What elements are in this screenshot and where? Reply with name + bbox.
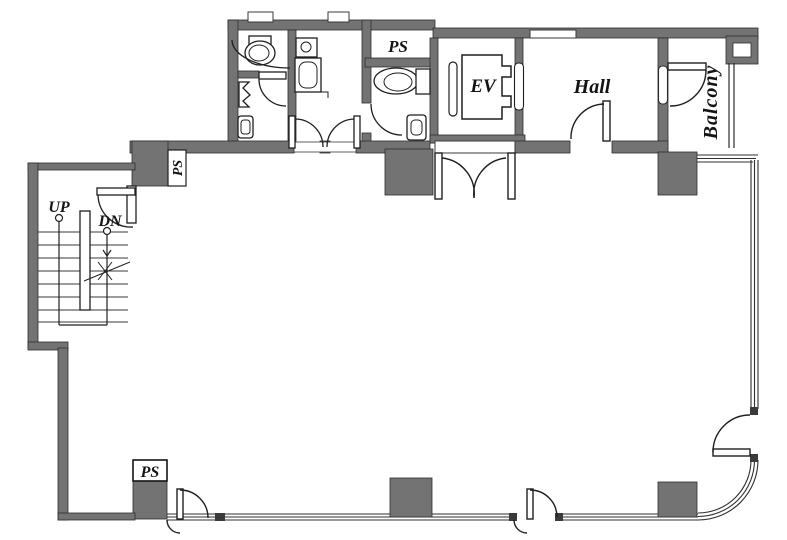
column-bottom-left-ps [133,480,167,519]
sink-d-basin [411,120,422,135]
down-label: DN [97,213,123,230]
balcony-corner-pillar-core [733,43,751,57]
window-wall-corner [698,460,758,520]
window-slit-3 [530,30,576,38]
elevator-door [515,63,524,110]
washroom-thresholds [294,142,356,152]
column-bottom-mid [390,478,432,517]
stairwell: UP DN [28,163,136,520]
double-door-left-leaf [435,153,442,199]
wall-stub [509,513,517,521]
bottom-mid-door-underswing [514,520,527,533]
up-label: UP [48,199,70,216]
balcony: Balcony [659,36,759,148]
wall-elevator-left [430,38,438,143]
double-door-left-swing [442,158,474,198]
window-wall-corner [698,460,751,513]
sink-b-basin [241,120,250,134]
balcony-label: Balcony [700,65,722,141]
toilet-d-bowl-inner [384,73,412,91]
right-door-leaf [713,449,750,456]
floor-plan: Balcony EV Hall [0,0,787,540]
wall-top-hall [433,28,758,38]
bottom-mid-door-swing [530,490,557,517]
hall: Hall [571,76,611,141]
window-walls [167,155,758,520]
ps-top-label: PS [387,37,408,56]
ps-stair: PS [168,150,186,186]
double-door-right-leaf [508,153,515,199]
stair-stringer [80,211,90,310]
elevator-label: EV [469,76,497,97]
window-wall-corner [698,460,755,517]
main-double-door [435,153,515,199]
stair-door-leaf [97,188,135,195]
wall-stub [215,513,225,521]
washroom-door-left-leaf [289,116,295,148]
threshold-main-double-door [435,141,515,153]
threshold-washroom [294,142,356,152]
double-door-right-swing [474,158,506,198]
toilet-d-tank [416,69,430,94]
hall-door-swing [571,104,604,139]
wall-stub [750,407,758,415]
column-bottom-right [658,482,697,517]
stair-wall-left [28,163,38,349]
ps-bottom: PS [133,460,167,481]
window-slit-2 [328,12,349,22]
columns [132,141,697,519]
column-entry-top [385,149,433,195]
wall-band-4 [515,141,570,153]
ps-stair-label: PS [171,160,186,177]
bottom-columns [390,478,697,517]
wall-wc-divider-horizontal [238,71,259,78]
entrance-door-underswing [167,520,180,533]
balcony-doorway [659,66,668,104]
bottom-mid-door-leaf [527,489,533,519]
wall-restrooms-left [228,20,238,152]
wall-band-5 [612,141,668,153]
wall-ps-room-bottom [365,58,433,67]
hall-door [571,101,610,141]
elevator-counterweight [449,62,457,116]
ps-bottom-label: PS [140,464,160,481]
window-slit-1 [248,12,273,22]
water-heater-dial [301,42,311,52]
column-stair-top [132,141,168,186]
wc-b-door-leaf [259,72,286,79]
right-door-swing [713,415,750,452]
urinal [239,82,250,107]
wc-d-door-swing [371,104,402,135]
wall-stub [750,454,758,462]
vanity-counter [295,92,328,98]
stair-wall-top [28,163,135,170]
washroom-door-right-leaf [354,116,360,148]
vanity-basin [299,62,317,88]
column-top-right [658,152,697,195]
wall-bottom-left [58,513,135,520]
wall-left-lower [58,348,68,520]
wc-b-door-swing [259,79,286,106]
entrance-door-leaf [177,489,183,519]
hall-label: Hall [573,76,611,98]
floor-plan-drawing: Balcony EV Hall [0,0,787,540]
elevator: EV [449,55,524,119]
toilet-a-bowl-inner [249,45,269,61]
hall-door-leaf [603,101,610,141]
